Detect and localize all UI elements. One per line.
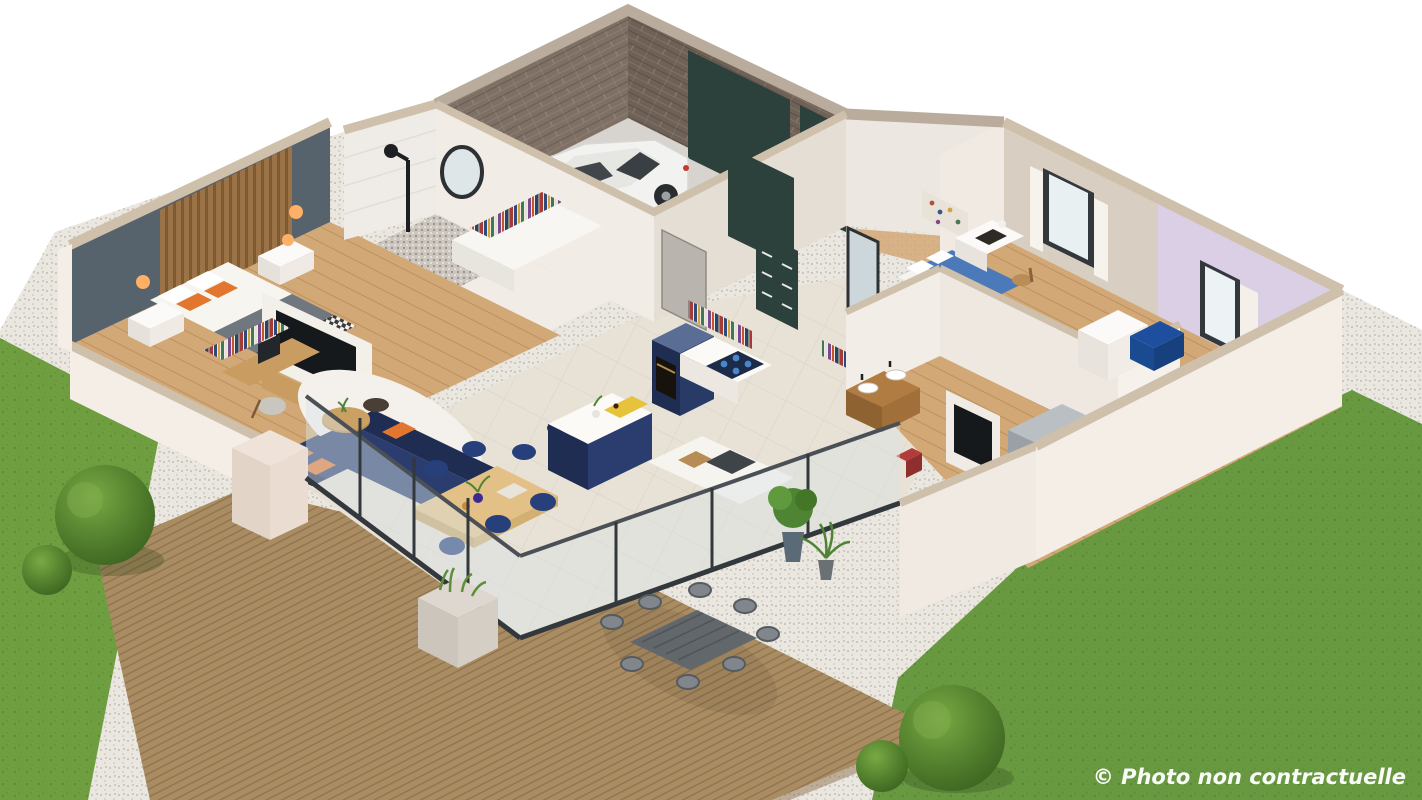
curtain-left [1030, 166, 1043, 252]
round-mirror [442, 147, 482, 197]
basin-2 [886, 370, 906, 380]
curtain-right [1094, 198, 1108, 282]
dining-chair-2 [462, 441, 486, 457]
wine-bottle [613, 403, 618, 408]
floorplan-render: © Photo non contractuelle [0, 0, 1422, 800]
wall-lamp-left-glow [136, 275, 150, 289]
isometric-house-scene: © Photo non contractuelle [0, 0, 1422, 800]
desk-chair [258, 397, 286, 415]
basin-1 [858, 383, 878, 393]
dining-chair-6 [530, 493, 556, 511]
desk-lamp-glow [282, 234, 294, 246]
corner-pillar [232, 430, 308, 540]
bush-right-small [856, 740, 908, 792]
west-wall-skirt [58, 244, 72, 352]
vase-island [592, 410, 600, 418]
dining-chair-3 [512, 444, 536, 460]
dining-chair-1 [424, 460, 448, 476]
shower-head [384, 144, 398, 158]
watermark: © Photo non contractuelle [1093, 765, 1406, 789]
wall-lamp-right-glow [289, 205, 303, 219]
desk-lamp-bedroom2 [998, 220, 1006, 228]
purple-vase [473, 493, 483, 503]
car-taillight [683, 165, 689, 171]
dark-side-table [363, 398, 389, 412]
bush-left-small [22, 545, 72, 595]
